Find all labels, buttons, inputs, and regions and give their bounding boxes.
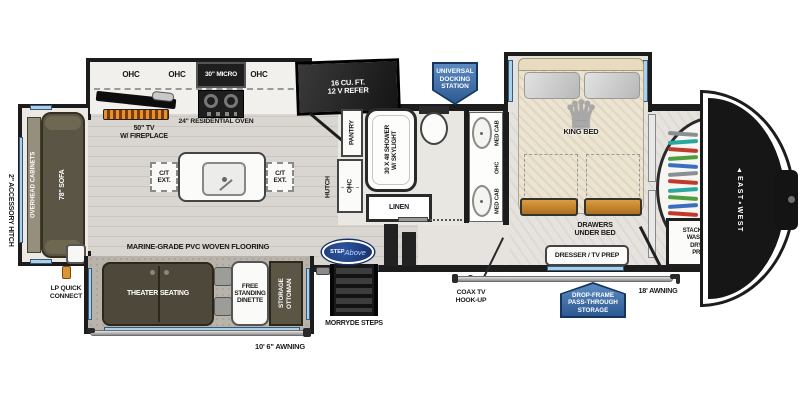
accessory-hitch-label: 2" ACCESSORY HITCH [3, 148, 17, 272]
ohc-label-2: OHC [160, 66, 194, 84]
sofa-window-rear [19, 137, 23, 243]
counter-ext-left: C/T EXT. [150, 162, 178, 192]
hanger [668, 163, 698, 169]
dinette-chair-2 [214, 297, 232, 316]
hanger [668, 179, 698, 185]
theater-seating-label: THEATER SEATING [104, 264, 212, 324]
steps-treads [336, 268, 372, 312]
interior-steps-2 [402, 232, 416, 266]
hanger [668, 187, 698, 193]
docking-station-label: UNIVERSAL DOCKING STATION [432, 62, 478, 105]
hanger [668, 139, 698, 145]
hanger [668, 195, 698, 201]
theater-seat: THEATER SEATING [102, 262, 214, 326]
storage-ottoman: STORAGE OTTOMAN [269, 261, 303, 326]
pocket-door [398, 217, 428, 222]
dinette-label: FREE STANDING DINETTE [233, 263, 267, 324]
burner-left [204, 94, 218, 108]
step-above-text-2: Above [345, 248, 366, 257]
drawers-under-bed-label: DRAWERS UNDER BED [545, 217, 645, 241]
headboard [518, 58, 644, 71]
toilet [420, 112, 448, 145]
hitch-pin [788, 196, 795, 203]
sofa: 78" SOFA [41, 112, 85, 258]
docking-station-badge: UNIVERSAL DOCKING STATION [432, 62, 478, 105]
ohc-label-1: OHC [110, 66, 152, 84]
med-cab-bottom-label: MED CAB [492, 183, 503, 219]
awning-main-line [90, 330, 308, 336]
theater-window-right [306, 268, 310, 320]
med-cab-top-label: MED CAB [492, 115, 503, 151]
burner-right [224, 94, 238, 108]
awning-main-cap-left [87, 328, 95, 333]
sink-top-drain [480, 132, 483, 135]
hanger [668, 147, 698, 153]
closet-door-top [648, 114, 656, 182]
dinette-chair-1 [214, 267, 232, 286]
coax-label: COAX TV HOOK-UP [442, 287, 500, 307]
hutch-label: HUTCH [322, 162, 334, 212]
dinette-table: FREE STANDING DINETTE [231, 261, 269, 326]
ohc-label-3: OHC [242, 66, 276, 84]
hutch-cabinet: OHC [337, 159, 363, 213]
step-above-logo: STEPAbove [322, 240, 374, 264]
sink-bottom-drain [480, 200, 483, 203]
awning-front-label: 18' AWNING [626, 285, 690, 297]
awning-front-cap-left [452, 274, 458, 283]
overhead-cabinets: OVERHEAD CABINETS [27, 117, 41, 253]
top-wall-mid [396, 104, 510, 111]
hanger [668, 211, 698, 217]
hutch-ohc-label: OHC [339, 161, 361, 211]
shower-label: 30 X 48 SHOWER W/ SKYLIGHT [368, 111, 414, 189]
bedroom-window [547, 266, 624, 271]
sofa-end-table [66, 244, 86, 264]
morryde-steps [330, 264, 378, 316]
microwave: 30" MICRO [196, 62, 246, 88]
steps-handle [316, 267, 330, 275]
counter-ext-right: C/T EXT. [266, 162, 294, 192]
interior-steps-1 [384, 224, 398, 266]
sofa-window-bottom [30, 259, 52, 264]
brand-logo: ▲EAST∘WEST [731, 142, 747, 258]
bed-drawer-right [584, 198, 642, 216]
door-swing-dots [430, 219, 462, 221]
fireplace [103, 109, 169, 120]
linen-label: LINEN [369, 197, 429, 219]
flooring-label: MARINE-GRADE PVC WOVEN FLOORING [106, 241, 290, 253]
bath-ohc-label: OHC [492, 155, 503, 181]
kitchen-island [178, 152, 266, 202]
awning-front-cap-drop [676, 274, 680, 284]
faucet [222, 177, 227, 182]
hanger [668, 203, 698, 209]
floorplan-canvas: OHC OHC OHC 30" MICRO 24" RESIDENTIAL OV… [0, 0, 800, 400]
brand-logo-text: EAST∘WEST [735, 176, 743, 233]
awning-main-cap-right [303, 328, 311, 337]
range-burners [198, 90, 244, 118]
top-wall-front [648, 104, 708, 111]
theater-window-left [88, 268, 92, 320]
vanity-wall-right [503, 105, 509, 225]
vanity: MED CAB OHC MED CAB [469, 112, 503, 222]
king-bed-label: KING BED [548, 126, 614, 138]
shower: 30 X 48 SHOWER W/ SKYLIGHT [365, 108, 417, 192]
awning-front-line [455, 276, 673, 282]
morryde-steps-label: MORRYDE STEPS [316, 318, 392, 330]
hanger [668, 155, 698, 161]
dresser-tv-prep: DRESSER / TV PREP [545, 245, 629, 266]
overhead-cabinets-label: OVERHEAD CABINETS [28, 118, 40, 252]
lp-connector [62, 266, 71, 279]
sofa-window-top [30, 105, 52, 110]
storage-ottoman-label: STORAGE OTTOMAN [271, 263, 301, 324]
tv-fireplace-label: 50" TV W/ FIREPLACE [94, 122, 194, 144]
bed-drawer-left [520, 198, 578, 216]
drop-frame-label: DROP-FRAME PASS-THROUGH STORAGE [560, 282, 626, 318]
pantry-cabinet: PANTRY [341, 109, 363, 157]
bed-window-left [508, 60, 513, 102]
awning-main-label: 10' 6" AWNING [240, 341, 320, 353]
hanger [668, 131, 698, 137]
drop-frame-badge: DROP-FRAME PASS-THROUGH STORAGE [560, 282, 626, 318]
step-above-text-1: STEP [330, 249, 344, 255]
hanger [668, 171, 698, 177]
pantry-label: PANTRY [343, 111, 361, 155]
sofa-label: 78" SOFA [43, 114, 83, 256]
